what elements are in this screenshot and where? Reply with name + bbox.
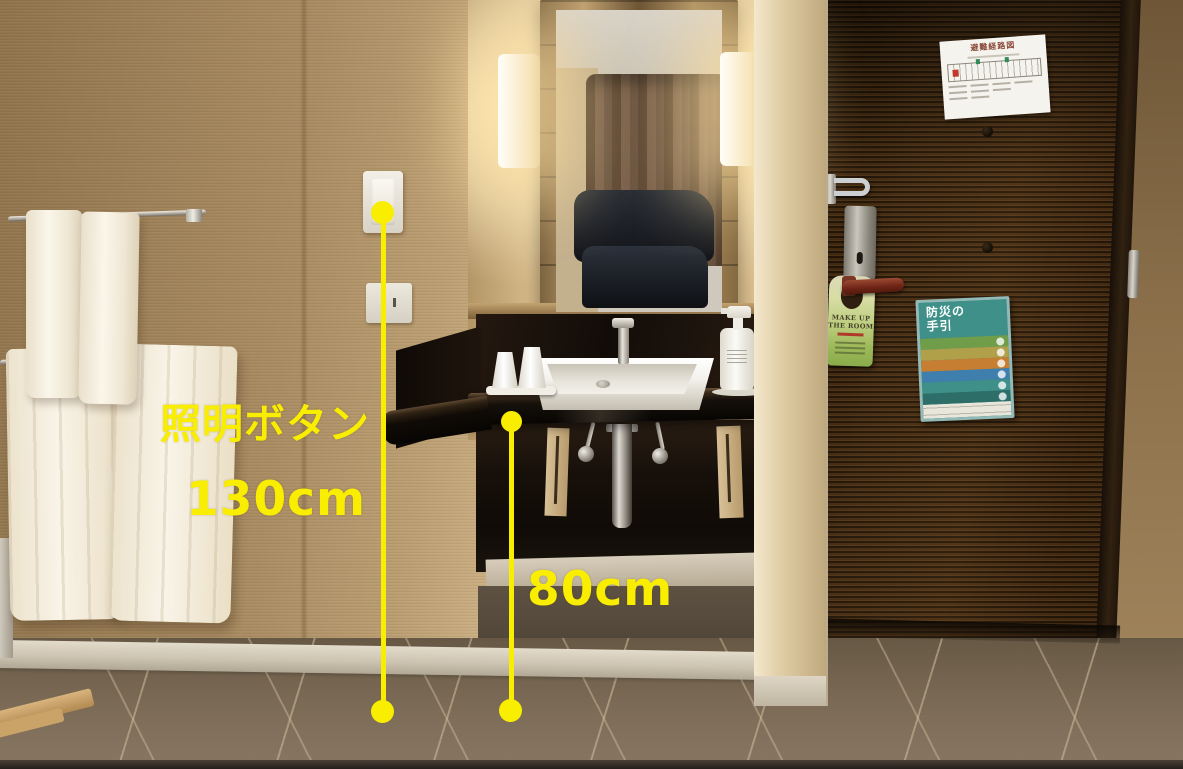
disaster-guide-poster: 防災の 手引 <box>915 296 1014 422</box>
measurement-dot <box>371 700 394 723</box>
annotation-counter-height: 80cm <box>527 566 677 613</box>
sink-drain <box>596 380 610 388</box>
counter-support-bracket-left <box>544 428 569 517</box>
door-hanger-rule <box>837 333 863 337</box>
soap-dispenser-neck <box>733 316 743 330</box>
poster-item-icon <box>997 359 1005 367</box>
faucet <box>618 324 629 364</box>
wall-pillar <box>754 0 828 706</box>
measurement-line-80cm <box>509 420 514 712</box>
bracket-slot <box>554 436 559 504</box>
chair-seat <box>582 246 708 308</box>
measurement-dot <box>501 411 522 432</box>
security-latch-bar <box>834 178 870 196</box>
evacuation-map-sign: 避難経路図 <box>939 34 1050 119</box>
faucet-spout <box>612 318 634 328</box>
exit-marker <box>1005 57 1009 62</box>
door-hanger-text-bar <box>835 351 865 354</box>
soap-dispenser <box>720 328 754 390</box>
drain-pipe <box>612 424 632 528</box>
hotel-room-photo: 避難経路図 MAKE UP THE ROOM <box>0 0 1183 769</box>
poster-item-icon <box>998 381 1006 389</box>
door-hanger-text-bar <box>835 346 865 349</box>
poster-title: 防災の 手引 <box>926 303 1008 334</box>
mirror-reflection-chair <box>574 190 714 312</box>
measurement-dot <box>371 201 394 224</box>
soap-dispenser-spout <box>721 308 729 314</box>
sink-bowl <box>544 364 700 394</box>
evacuation-map-title: 避難経路図 <box>946 40 1040 55</box>
bracket-slot <box>726 434 731 502</box>
poster-item-icon <box>997 348 1005 356</box>
counter-support-bracket-right <box>716 426 743 519</box>
evacuation-map-subtitle-bar <box>967 53 1020 59</box>
outlet-slot <box>393 298 396 307</box>
soap-dispenser-pump <box>727 306 751 318</box>
measurement-dot <box>499 699 522 722</box>
mirror <box>556 10 722 312</box>
measurement-line-130cm <box>381 212 386 712</box>
keyhole <box>857 252 863 264</box>
door-lock-plate <box>843 206 876 281</box>
annotation-switch-label: 照明ボタン <box>118 404 370 445</box>
poster-item-icon <box>996 337 1004 345</box>
annotation-switch-height: 130cm <box>118 476 366 523</box>
pillar-baseboard <box>754 676 826 706</box>
door-hanger-text-bar <box>835 341 865 344</box>
peephole-lower <box>982 242 993 253</box>
door-hinge <box>1127 250 1140 298</box>
poster-item-icon <box>998 392 1006 400</box>
peephole-upper <box>982 126 993 137</box>
shutoff-valve-left <box>578 446 594 462</box>
shutoff-valve-right <box>652 448 668 464</box>
current-location-marker <box>952 69 958 76</box>
hand-towel <box>78 212 139 405</box>
photo-bottom-edge <box>0 760 1183 769</box>
towel-bar-post <box>186 209 202 222</box>
soap-dispenser-label <box>727 350 747 364</box>
hand-towel <box>26 210 82 398</box>
wall-sconce-left <box>498 54 540 168</box>
poster-header: 防災の 手引 <box>919 299 1008 339</box>
exit-marker <box>975 59 979 64</box>
poster-item-icon <box>998 370 1006 378</box>
door-hanger-title: MAKE UP THE ROOM <box>828 313 875 331</box>
power-outlet <box>366 283 412 323</box>
wall-corner-shadow <box>300 0 308 700</box>
evacuation-floor-plan <box>947 58 1042 83</box>
